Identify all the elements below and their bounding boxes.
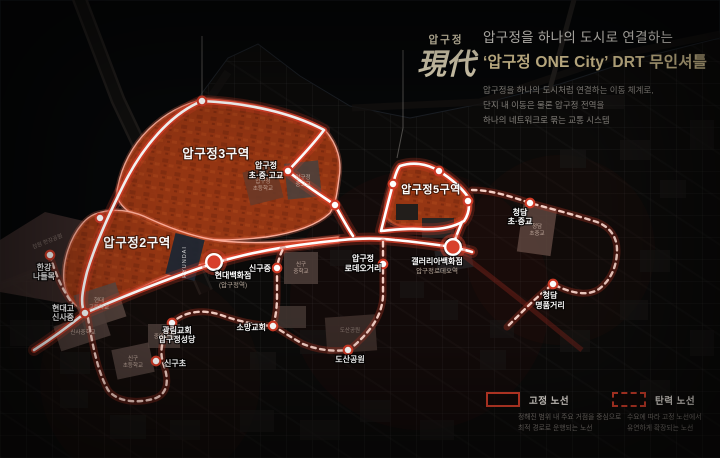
title-desc-line2: 단지 내 이동은 물론 압구정 전역을 <box>483 98 715 113</box>
node-riverside <box>96 214 105 223</box>
building-label-apgu-elem-1: 압구정 <box>255 177 270 185</box>
station-label-hangang-1: 한강 <box>37 262 52 272</box>
node-zone3-top <box>198 97 207 106</box>
station-label-somang: 소망교회 <box>237 322 266 332</box>
node-cheongdam-school <box>526 199 535 208</box>
node-dosan <box>344 346 353 355</box>
station-label-hyundaigo-1: 현대고 <box>52 303 75 313</box>
station-label-school-1: 압구정 <box>255 160 277 170</box>
station-label-cheongdam-street-1: 청담 <box>543 290 558 300</box>
infographic-map-poster: 압구정3구역 압구정2구역 압구정5구역 한강 나들목 현대고 신사중 광림교회… <box>0 0 720 458</box>
legend-flex-route: 탄력 노선 수요에 따라 고정 노선에서 유연하게 확장되는 노선 <box>612 392 701 434</box>
node-zone3-se <box>331 201 340 210</box>
legend-fixed-route-label: 고정 노선 <box>529 393 569 407</box>
building-label-apgu-midhigh-2: 중고교 <box>295 181 310 188</box>
zone3-label: 압구정3구역 <box>182 146 249 161</box>
station-label-rodeo-2: 로데오거리 <box>345 263 382 273</box>
station-label-galleria-sub: 압구정로데오역 <box>416 266 458 275</box>
building-label-hyundai-high-1: 현대 <box>94 296 104 304</box>
building-label-singu-elem-2: 초등학교 <box>123 361 143 369</box>
title-desc-line3: 하나의 네트워크로 묶는 교통 시스템 <box>483 113 715 128</box>
logo-main-text: 現代 <box>415 48 477 80</box>
station-label-singucho: 신구초 <box>164 358 187 368</box>
legend-flex-route-swatch <box>612 392 646 407</box>
legend-flex-desc-line2: 유연하게 확장되는 노선 <box>627 424 701 435</box>
station-label-hyundai-dept: 현대백화점 <box>215 270 252 280</box>
building-label-singu-mid-1: 신구 <box>296 260 306 268</box>
apgujeong-hyundai-logo: 압구정 現代 <box>415 32 477 80</box>
station-label-dosan: 도산공원 <box>335 354 364 364</box>
node-zone5-w <box>389 180 398 189</box>
station-label-singujung: 신구중 <box>249 263 272 273</box>
station-label-cheongdam-school-2: 초·중교 <box>508 217 533 226</box>
building-label-apgu-midhigh-1: 압구정 <box>295 173 310 181</box>
node-galleria <box>442 236 465 259</box>
building-label-cheongdam-school-2: 초중교 <box>529 230 544 237</box>
building-label-apgu-elem-2: 초등학교 <box>253 184 273 192</box>
legend-flex-desc-line1: 수요에 따라 고정 노선에서 <box>627 413 701 424</box>
building-label-hyundai-store: HYUNDAI <box>182 246 188 278</box>
header: 압구정 現代 압구정을 하나의 도시로 연결하는 ‘압구정 ONE City’ … <box>415 26 715 128</box>
node-singujung <box>273 264 282 273</box>
station-label-cheongdam-school-1: 청담 <box>513 207 528 217</box>
station-label-cheongdam-street-2: 명품거리 <box>535 300 564 310</box>
station-label-galleria: 갤러리아백화점 <box>411 256 463 266</box>
building-label-cheongdam-school-1: 청담 <box>532 223 542 230</box>
node-zone5-n <box>435 167 444 176</box>
building-label-jungang-church: 중앙교회 <box>154 332 174 340</box>
building-label-singu-mid-2: 중학교 <box>293 267 308 275</box>
legend-fixed-route: 고정 노선 정해진 범위 내 주요 거점을 중심으로 최적 경로로 운행되는 노… <box>486 392 621 434</box>
node-cheongdam-street <box>549 280 558 289</box>
station-label-hyundai-dept-sub: (압구정역) <box>219 280 247 289</box>
building-label-singu-elem-1: 신구 <box>128 354 138 362</box>
logo-top-text: 압구정 <box>415 32 477 47</box>
node-school <box>284 167 293 176</box>
legend-fixed-desc-line1: 정해진 범위 내 주요 거점을 중심으로 <box>518 413 621 424</box>
building-label-dosan-park: 도산공원 <box>340 326 360 334</box>
page-title-line2: ‘압구정 ONE City’ DRT 무인셔틀 <box>483 50 715 72</box>
node-zone5-e <box>464 197 473 206</box>
page-title-line1: 압구정을 하나의 도시로 연결하는 <box>483 26 715 46</box>
node-hangang <box>46 251 55 260</box>
station-label-rodeo-1: 압구정 <box>352 253 374 263</box>
building-label-sinsa-mid: 신사중학교 <box>70 328 95 336</box>
building-label-hyundai-high-2: 고등학교 <box>89 303 109 311</box>
zone5-label: 압구정5구역 <box>401 182 461 196</box>
station-label-hyundaigo-2: 신사중 <box>52 312 75 322</box>
legend-flex-route-label: 탄력 노선 <box>655 393 695 407</box>
title-desc-line1: 압구정을 하나의 도시처럼 연결하는 이동 체계로, <box>483 83 715 98</box>
node-singucho <box>152 357 161 366</box>
zone2-label: 압구정2구역 <box>103 235 170 250</box>
legend-fixed-desc-line2: 최적 경로로 운행되는 노선 <box>518 424 621 435</box>
node-somang <box>269 322 278 331</box>
station-label-hangang-2: 나들목 <box>33 271 56 281</box>
legend-fixed-route-swatch <box>486 392 520 407</box>
